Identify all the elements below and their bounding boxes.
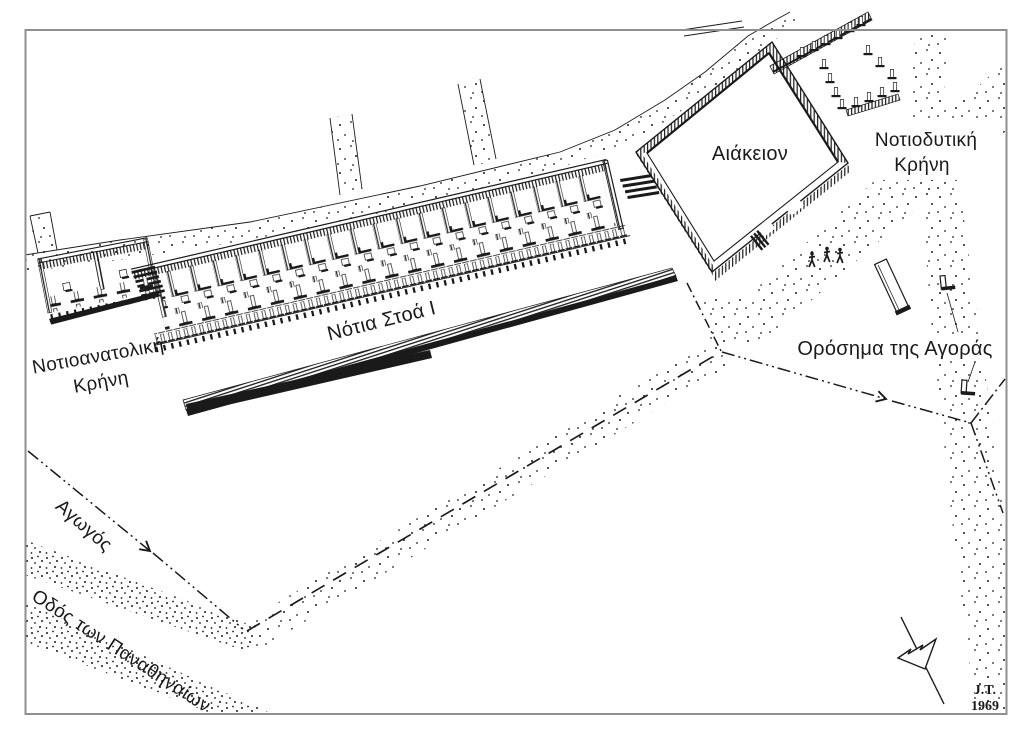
label-sw-fountain-line1: Νοτιοδυτική — [875, 130, 977, 151]
signature-year: 1969 — [971, 699, 999, 714]
signature: J.T. 1969 — [971, 683, 999, 714]
road-branch-east — [458, 79, 497, 166]
north-arrow — [898, 617, 944, 704]
road-narrow-diagonal — [246, 338, 728, 650]
roads — [25, 12, 1007, 712]
label-boundary-stones: Ορόσημα της Αγοράς — [797, 338, 992, 360]
site-plan-drawing: Νότια Στοά Ι Νοτιοανατολική Κρήνη Αιάκει… — [0, 0, 1024, 731]
retaining-wall-lines — [682, 21, 744, 36]
label-sw-fountain-line2: Κρήνη — [894, 155, 950, 176]
signature-initials: J.T. — [974, 683, 996, 698]
label-conduit: Αγωγός — [51, 496, 116, 556]
label-aiakeion: Αιάκειον — [712, 143, 788, 165]
label-se-fountain-line2: Κρήνη — [72, 367, 130, 397]
north-arrow-flag — [898, 639, 936, 669]
statue-base-block — [873, 258, 911, 315]
site-plan-page: Νότια Στοά Ι Νοτιοανατολική Κρήνη Αιάκει… — [0, 0, 1024, 731]
